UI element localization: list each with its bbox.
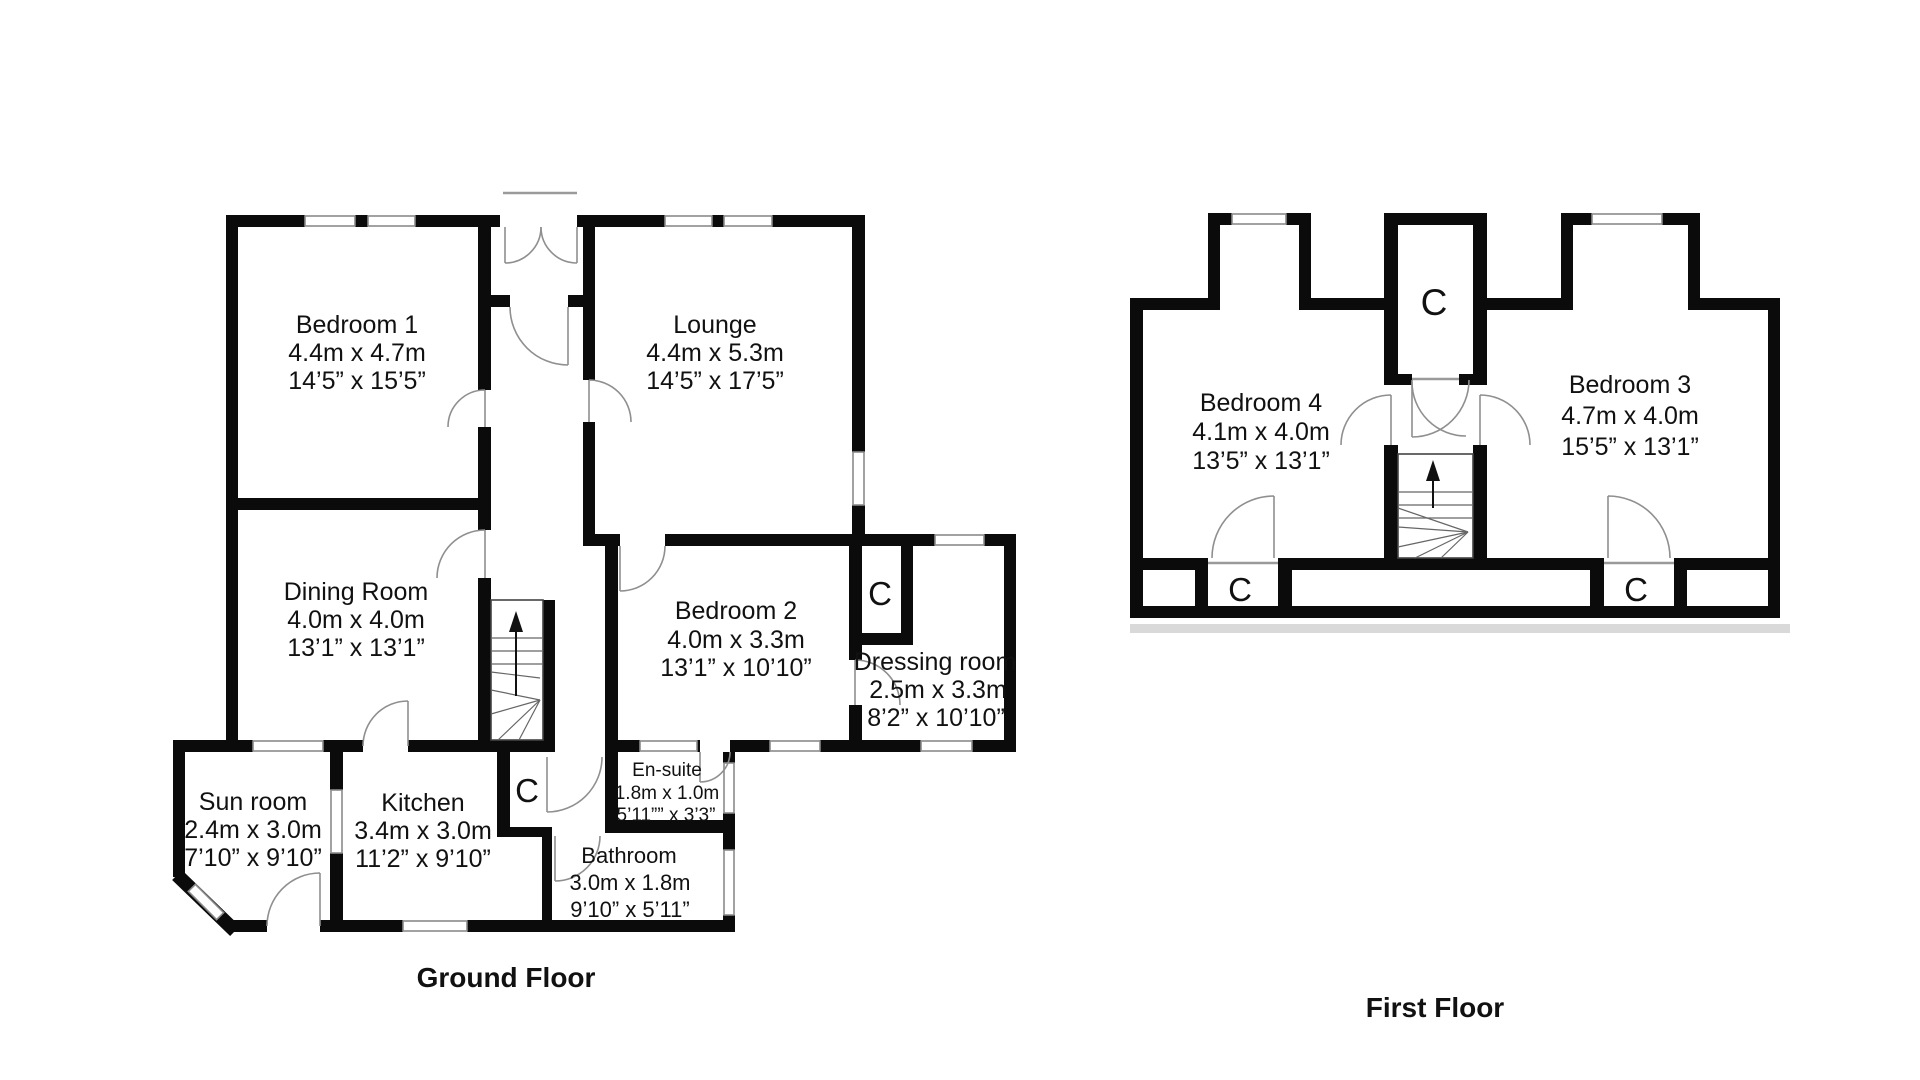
label-closet-bedroom2: C: [868, 575, 892, 612]
label-closet-right: C: [1624, 571, 1648, 608]
label-bedroom1-name: Bedroom 1: [296, 311, 418, 339]
label-kitchen-imperial: 11’2” x 9’10”: [355, 845, 491, 873]
label-dining-imperial: 13’1” x 13’1”: [287, 634, 425, 662]
ground-floor-plan: Bedroom 1 4.4m x 4.7m 14’5” x 15’5” Loun…: [173, 193, 1016, 993]
label-lounge-name: Lounge: [673, 311, 756, 339]
label-bathroom-imperial: 9’10” x 5’11”: [570, 897, 689, 922]
label-bathroom-metric: 3.0m x 1.8m: [569, 870, 690, 895]
label-bedroom3-imperial: 15’5” x 13’1”: [1561, 433, 1699, 461]
label-bedroom2-name: Bedroom 2: [675, 597, 797, 625]
first-labels: Bedroom 4 4.1m x 4.0m 13’5” x 13’1” Bedr…: [1192, 282, 1699, 1023]
label-bedroom1-imperial: 14’5” x 15’5”: [288, 367, 426, 395]
label-ensuite-metric: 1.8m x 1.0m: [615, 783, 720, 804]
label-bedroom4-metric: 4.1m x 4.0m: [1192, 418, 1330, 446]
first-floor-plan: Bedroom 4 4.1m x 4.0m 13’5” x 13’1” Bedr…: [1130, 213, 1790, 1023]
label-sunroom-name: Sun room: [199, 788, 307, 816]
label-lounge-metric: 4.4m x 5.3m: [646, 339, 784, 367]
label-closet-kitchen: C: [515, 772, 539, 809]
label-bedroom3-metric: 4.7m x 4.0m: [1561, 402, 1699, 430]
label-lounge-imperial: 14’5” x 17’5”: [646, 367, 784, 395]
ground-labels: Bedroom 1 4.4m x 4.7m 14’5” x 15’5” Loun…: [184, 311, 1016, 993]
floorplan-canvas: Bedroom 1 4.4m x 4.7m 14’5” x 15’5” Loun…: [0, 0, 1920, 1080]
label-closet-left: C: [1228, 571, 1252, 608]
label-kitchen-metric: 3.4m x 3.0m: [354, 817, 492, 845]
label-bedroom1-metric: 4.4m x 4.7m: [288, 339, 426, 367]
label-closet-top: C: [1421, 282, 1448, 323]
label-dining-name: Dining Room: [284, 578, 429, 606]
first-floor-shadow: [1130, 624, 1790, 633]
label-bedroom3-name: Bedroom 3: [1569, 371, 1691, 399]
label-kitchen-name: Kitchen: [381, 789, 464, 817]
label-bedroom2-metric: 4.0m x 3.3m: [667, 626, 805, 654]
label-dining-metric: 4.0m x 4.0m: [287, 606, 425, 634]
label-dressing-imperial: 8’2” x 10’10”: [867, 704, 1005, 732]
label-ensuite-name: En-suite: [632, 760, 702, 781]
label-dressing-metric: 2.5m x 3.3m: [869, 676, 1007, 704]
first-floor-title: First Floor: [1366, 992, 1505, 1023]
label-sunroom-imperial: 7’10” x 9’10”: [184, 844, 322, 872]
label-bedroom4-imperial: 13’5” x 13’1”: [1192, 447, 1330, 475]
label-ensuite-imperial: 5’11”” x 3’3”: [617, 805, 716, 826]
ground-floor-title: Ground Floor: [417, 962, 596, 993]
label-bedroom4-name: Bedroom 4: [1200, 389, 1322, 417]
ground-stairs: [491, 600, 543, 740]
label-dressing-name: Dressing room: [854, 648, 1017, 676]
label-bathroom-name: Bathroom: [581, 843, 676, 868]
label-sunroom-metric: 2.4m x 3.0m: [184, 816, 322, 844]
label-bedroom2-imperial: 13’1” x 10’10”: [660, 654, 811, 682]
floorplan-drawing: Bedroom 1 4.4m x 4.7m 14’5” x 15’5” Loun…: [0, 0, 1920, 1080]
first-stairs: [1398, 454, 1473, 558]
